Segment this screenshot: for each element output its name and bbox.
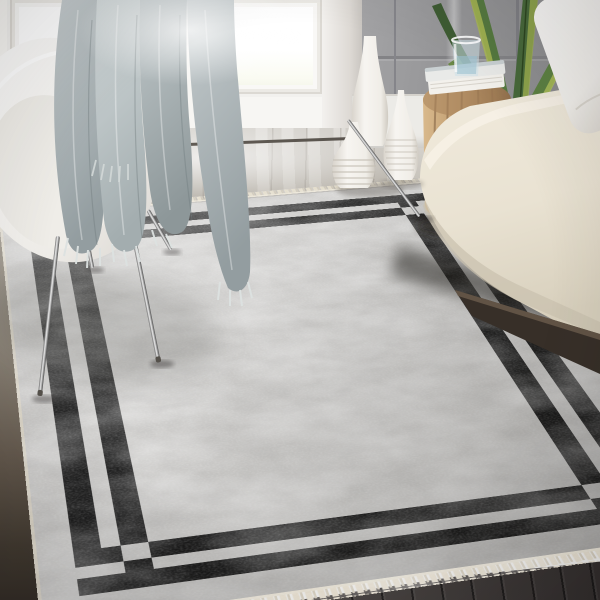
chrome-strut bbox=[347, 119, 421, 217]
chair-throw-layer bbox=[0, 0, 440, 430]
water-glass bbox=[452, 37, 480, 76]
living-room-rug-photo bbox=[0, 0, 600, 600]
sofa bbox=[420, 84, 600, 374]
